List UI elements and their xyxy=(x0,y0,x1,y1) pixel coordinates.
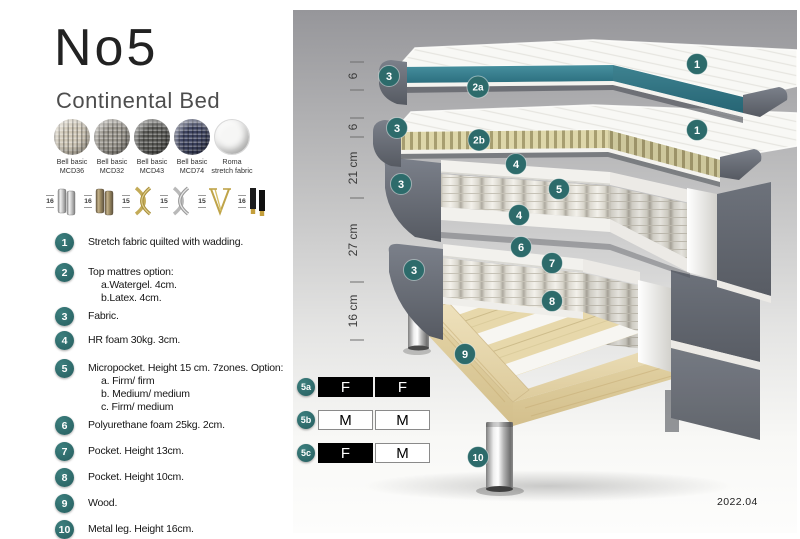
svg-text:4: 4 xyxy=(513,159,520,171)
fabric-right-mid xyxy=(717,182,771,296)
svg-text:1: 1 xyxy=(694,125,700,137)
fabric-swatch-icon xyxy=(54,119,90,155)
spec-list: 1 Stretch fabric quilted with wadding. 2… xyxy=(0,233,293,539)
list-item: 3 Fabric. xyxy=(55,307,293,331)
fabric-swatch-icon xyxy=(94,119,130,155)
list-item: 4 HR foam 30kg. 3cm. xyxy=(55,331,293,359)
leg-black-gold-tip-icon xyxy=(247,186,269,216)
leg-crossed-gold-icon xyxy=(131,186,155,216)
firmness-cell: M xyxy=(375,410,430,430)
item-number-badge: 8 xyxy=(55,468,74,487)
firmness-row-5c: 5c F M xyxy=(297,443,430,463)
callout-7: 7 xyxy=(542,253,563,274)
callout-4-top: 4 xyxy=(506,154,527,175)
fabric-swatch-roma-stretch: Romastretch fabric xyxy=(212,119,252,175)
dimension-label: 21 cm xyxy=(346,152,360,185)
firmness-cell: F xyxy=(375,377,430,397)
watergel-core-band xyxy=(398,65,613,83)
version-date: 2022.04 xyxy=(717,496,758,508)
item-number-badge: 10 xyxy=(55,520,74,539)
svg-text:2a: 2a xyxy=(472,83,484,94)
item-number-badge: 5 xyxy=(55,359,74,378)
dimension-label: 6 xyxy=(346,123,360,130)
item-number-badge: 4 xyxy=(55,331,74,350)
item-number-badge: 1 xyxy=(55,233,74,252)
leg-option-gold-cross: 15 xyxy=(122,186,155,216)
item-number-badge: 2 xyxy=(55,263,74,282)
dimension-label: 16 cm xyxy=(346,295,360,328)
info-panel: No5 Continental Bed Bell basicMCD36 Bell… xyxy=(0,0,293,533)
callout-3a: 3 xyxy=(379,66,400,87)
firmness-cell: F xyxy=(318,377,373,397)
list-item: 7 Pocket. Height 13cm. xyxy=(55,442,293,468)
leg-cylinder-chrome-icon xyxy=(55,186,79,216)
callout-3c: 3 xyxy=(391,174,412,195)
callout-4-bottom: 4 xyxy=(509,205,530,226)
list-item: 10 Metal leg. Height 16cm. xyxy=(55,520,293,539)
callout-3b: 3 xyxy=(387,118,408,139)
mattress-edge-pillar-upper xyxy=(687,188,717,280)
svg-text:3: 3 xyxy=(398,179,404,191)
fabric-swatch-icon xyxy=(174,119,210,155)
list-item: 8 Pocket. Height 10cm. xyxy=(55,468,293,494)
callout-1-top: 1 xyxy=(687,54,708,75)
firmness-cell: M xyxy=(375,443,430,463)
list-item: 5 Micropocket. Height 15 cm. 7zones. Opt… xyxy=(55,359,293,416)
list-item: 2 Top mattres option: a.Watergel. 4cm. b… xyxy=(55,263,293,307)
item-number-badge: 9 xyxy=(55,494,74,513)
svg-text:7: 7 xyxy=(549,258,555,270)
leg-option-chrome-block: 16 xyxy=(46,186,79,216)
callout-9: 9 xyxy=(455,344,476,365)
item-number-badge: 6 xyxy=(55,416,74,435)
fabric-swatch-bell-basic-mcd32: Bell basicMCD32 xyxy=(92,119,132,175)
svg-text:3: 3 xyxy=(394,123,400,135)
svg-text:6: 6 xyxy=(518,242,524,254)
item-number-badge: 3 xyxy=(55,307,74,326)
leg-option-bronze-block: 16 xyxy=(84,186,117,216)
svg-text:9: 9 xyxy=(462,349,468,361)
page-subtitle: Continental Bed xyxy=(56,88,220,114)
list-item: 9 Wood. xyxy=(55,494,293,520)
leg-hairpin-gold-icon xyxy=(207,186,233,216)
fabric-swatch-bell-basic-mcd36: Bell basicMCD36 xyxy=(52,119,92,175)
firmness-row-5b: 5b M M xyxy=(297,410,430,430)
floor-shadow xyxy=(363,470,733,502)
fabric-swatch-row: Bell basicMCD36 Bell basicMCD32 Bell bas… xyxy=(52,119,252,175)
firmness-badge: 5a xyxy=(297,378,315,396)
dimension-label: 6 xyxy=(346,72,360,79)
leg-crossed-silver-icon xyxy=(169,186,193,216)
mattress-edge-pillar-lower xyxy=(638,280,671,372)
dimension-label: 27 cm xyxy=(346,224,360,257)
svg-text:3: 3 xyxy=(411,265,417,277)
svg-text:3: 3 xyxy=(386,71,392,83)
page-title: No5 xyxy=(54,22,158,74)
firmness-badge: 5c xyxy=(297,444,315,462)
firmness-cell: M xyxy=(318,410,373,430)
bed-cutaway-diagram: 6 6 21 cm 27 cm 16 cm 1 3 2a 1 3 2b 4 5 … xyxy=(293,10,797,533)
leg-options-row: 16 16 15 xyxy=(46,186,269,216)
leg-cylinder-bronze-icon xyxy=(93,186,117,216)
latex-core-band xyxy=(393,130,608,151)
svg-text:10: 10 xyxy=(472,453,484,464)
fabric-swatch-icon xyxy=(214,119,250,155)
svg-text:1: 1 xyxy=(694,59,700,71)
firmness-row-5a: 5a F F xyxy=(297,377,430,397)
leg-option-gold-hairpin: 15 xyxy=(198,186,233,216)
callout-3d: 3 xyxy=(404,260,425,281)
callout-10: 10 xyxy=(468,447,489,468)
item-number-badge: 7 xyxy=(55,442,74,461)
callout-2b: 2b xyxy=(468,129,490,151)
fabric-swatch-bell-basic-mcd43: Bell basicMCD43 xyxy=(132,119,172,175)
svg-text:4: 4 xyxy=(516,210,523,222)
fabric-swatch-bell-basic-mcd74: Bell basicMCD74 xyxy=(172,119,212,175)
callout-6: 6 xyxy=(511,237,532,258)
callout-8: 8 xyxy=(542,291,563,312)
list-item: 6 Polyurethane foam 25kg. 2cm. xyxy=(55,416,293,442)
fabric-swatch-icon xyxy=(134,119,170,155)
leg-option-silver-cross: 15 xyxy=(160,186,193,216)
svg-text:8: 8 xyxy=(549,296,555,308)
leg-option-black-gold-tip: 16 xyxy=(238,186,269,216)
list-item: 1 Stretch fabric quilted with wadding. xyxy=(55,233,293,263)
firmness-badge: 5b xyxy=(297,411,315,429)
firmness-cell: F xyxy=(318,443,373,463)
callout-1-mid: 1 xyxy=(687,120,708,141)
svg-text:2b: 2b xyxy=(473,136,485,147)
callout-5: 5 xyxy=(549,179,570,200)
svg-text:5: 5 xyxy=(556,184,562,196)
callout-2a: 2a xyxy=(467,76,489,98)
